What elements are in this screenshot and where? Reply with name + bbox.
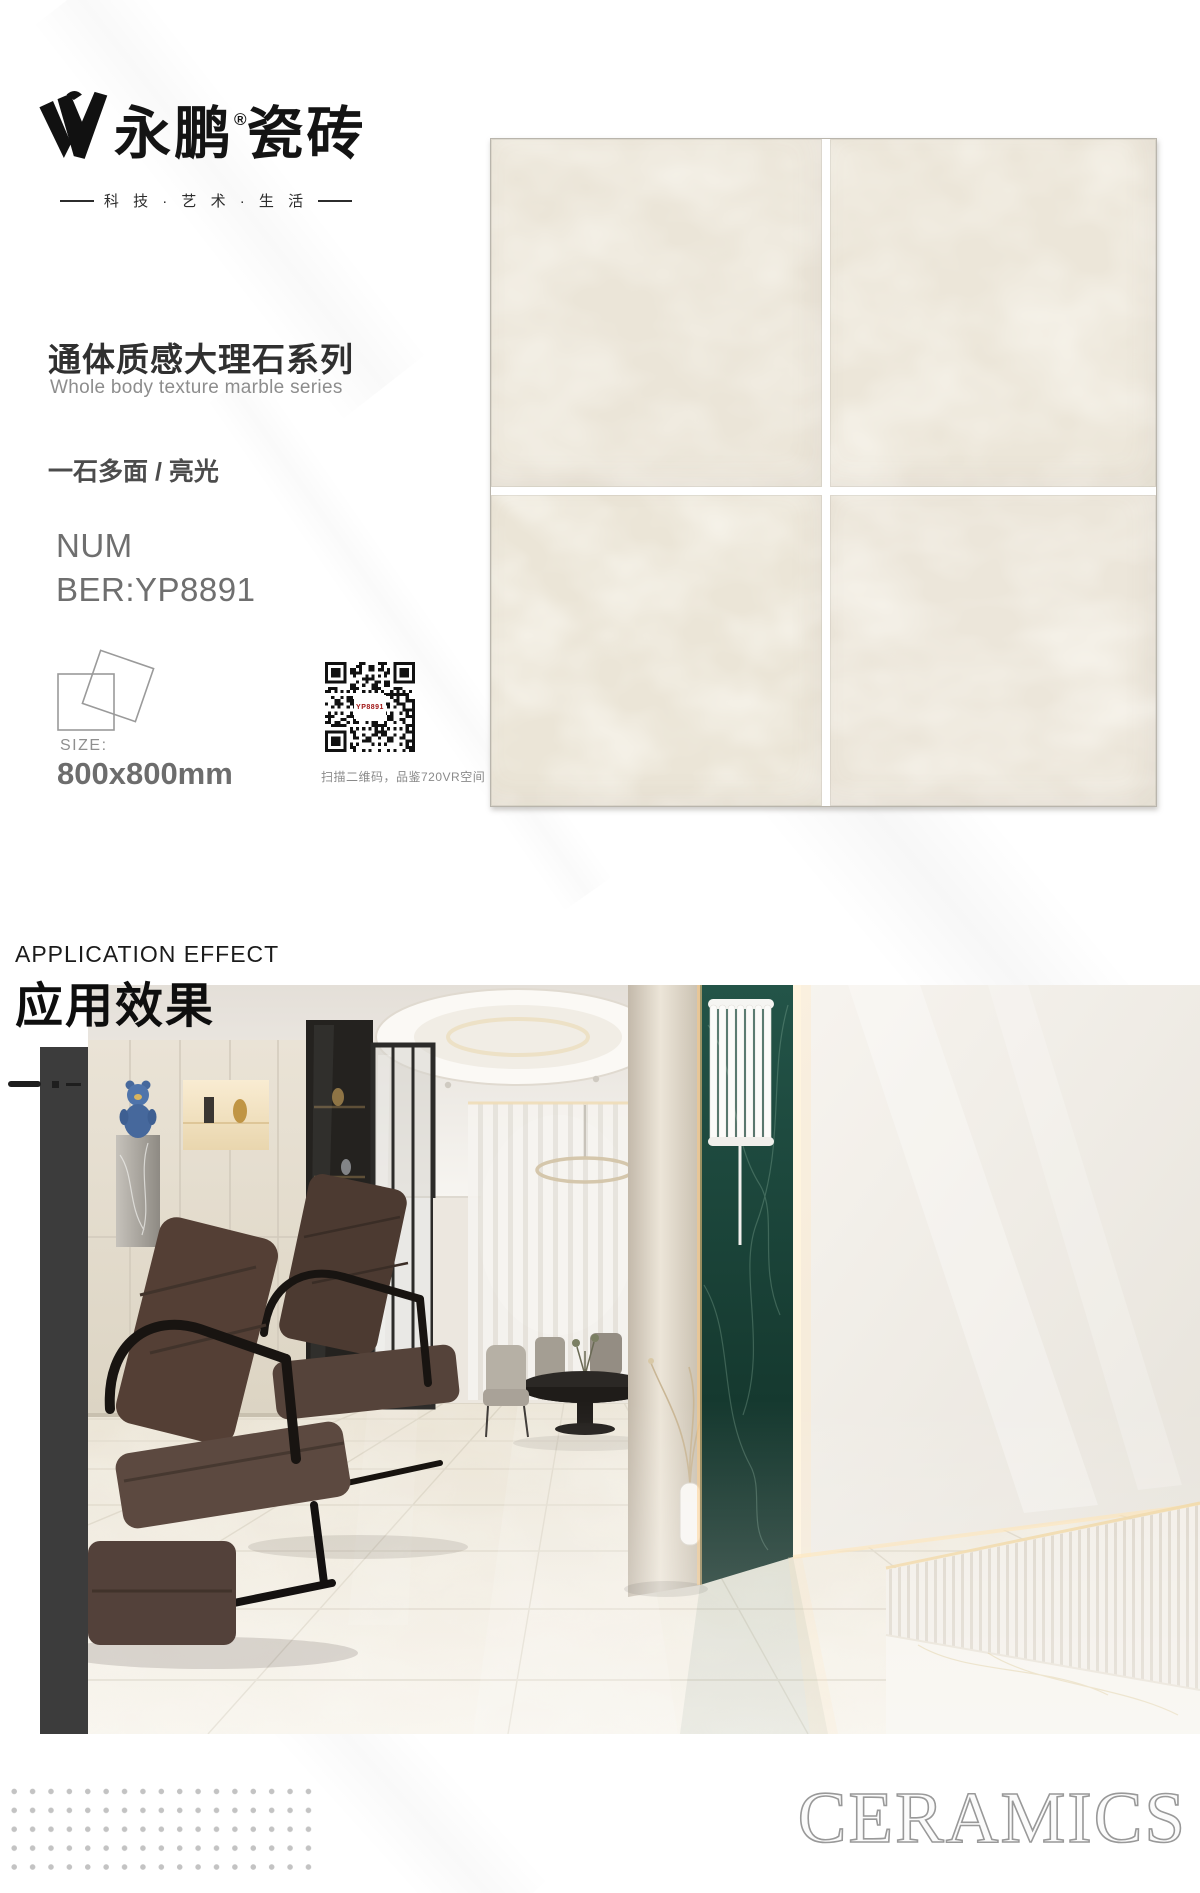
tile-sample [830,495,1156,806]
product-number-line1: NUM [56,524,255,568]
series-title-en: Whole body texture marble series [50,377,343,399]
tile-format-icon [52,648,162,740]
ceramics-watermark: CERAMICS [798,1776,1187,1860]
tile-sample [830,139,1156,487]
tile-sample [491,139,822,487]
tile-montage [490,138,1157,807]
size-label: SIZE: [60,737,108,755]
qr-code: YP8891 [325,662,415,752]
qr-caption: 扫描二维码，品鉴720VR空间 [321,768,485,785]
brand-name: 永鹏®瓷砖 [114,106,367,163]
brand-name-part2: 瓷砖 [247,102,367,166]
accent-bar [40,1047,88,1734]
brand-name-part1: 永鹏 [114,102,234,166]
qr-center-label: YP8891 [354,695,386,719]
interior-scene [88,985,1200,1734]
size-value: 800x800mm [57,756,233,792]
surface-finish-text: 一石多面 / 亮光 [48,452,219,488]
tile-sample [491,495,822,806]
brand-tagline: 科 技 · 艺 术 · 生 活 [72,190,340,211]
application-title-cn: 应用效果 [15,966,215,1036]
product-number-line2: BER:YP8891 [56,568,255,612]
application-photo [88,985,1200,1734]
registered-trademark-icon: ® [234,110,247,129]
dot-grid-ornament [5,1782,319,1877]
product-number: NUM BER:YP8891 [56,524,255,612]
catalog-page: 永鹏®瓷砖 科 技 · 艺 术 · 生 活 通体质感大理石系列 Whole bo… [0,0,1200,1893]
application-title-en: APPLICATION EFFECT [15,941,279,968]
series-title-cn: 通体质感大理石系列 [48,333,354,381]
brand-logo-icon [34,86,110,172]
